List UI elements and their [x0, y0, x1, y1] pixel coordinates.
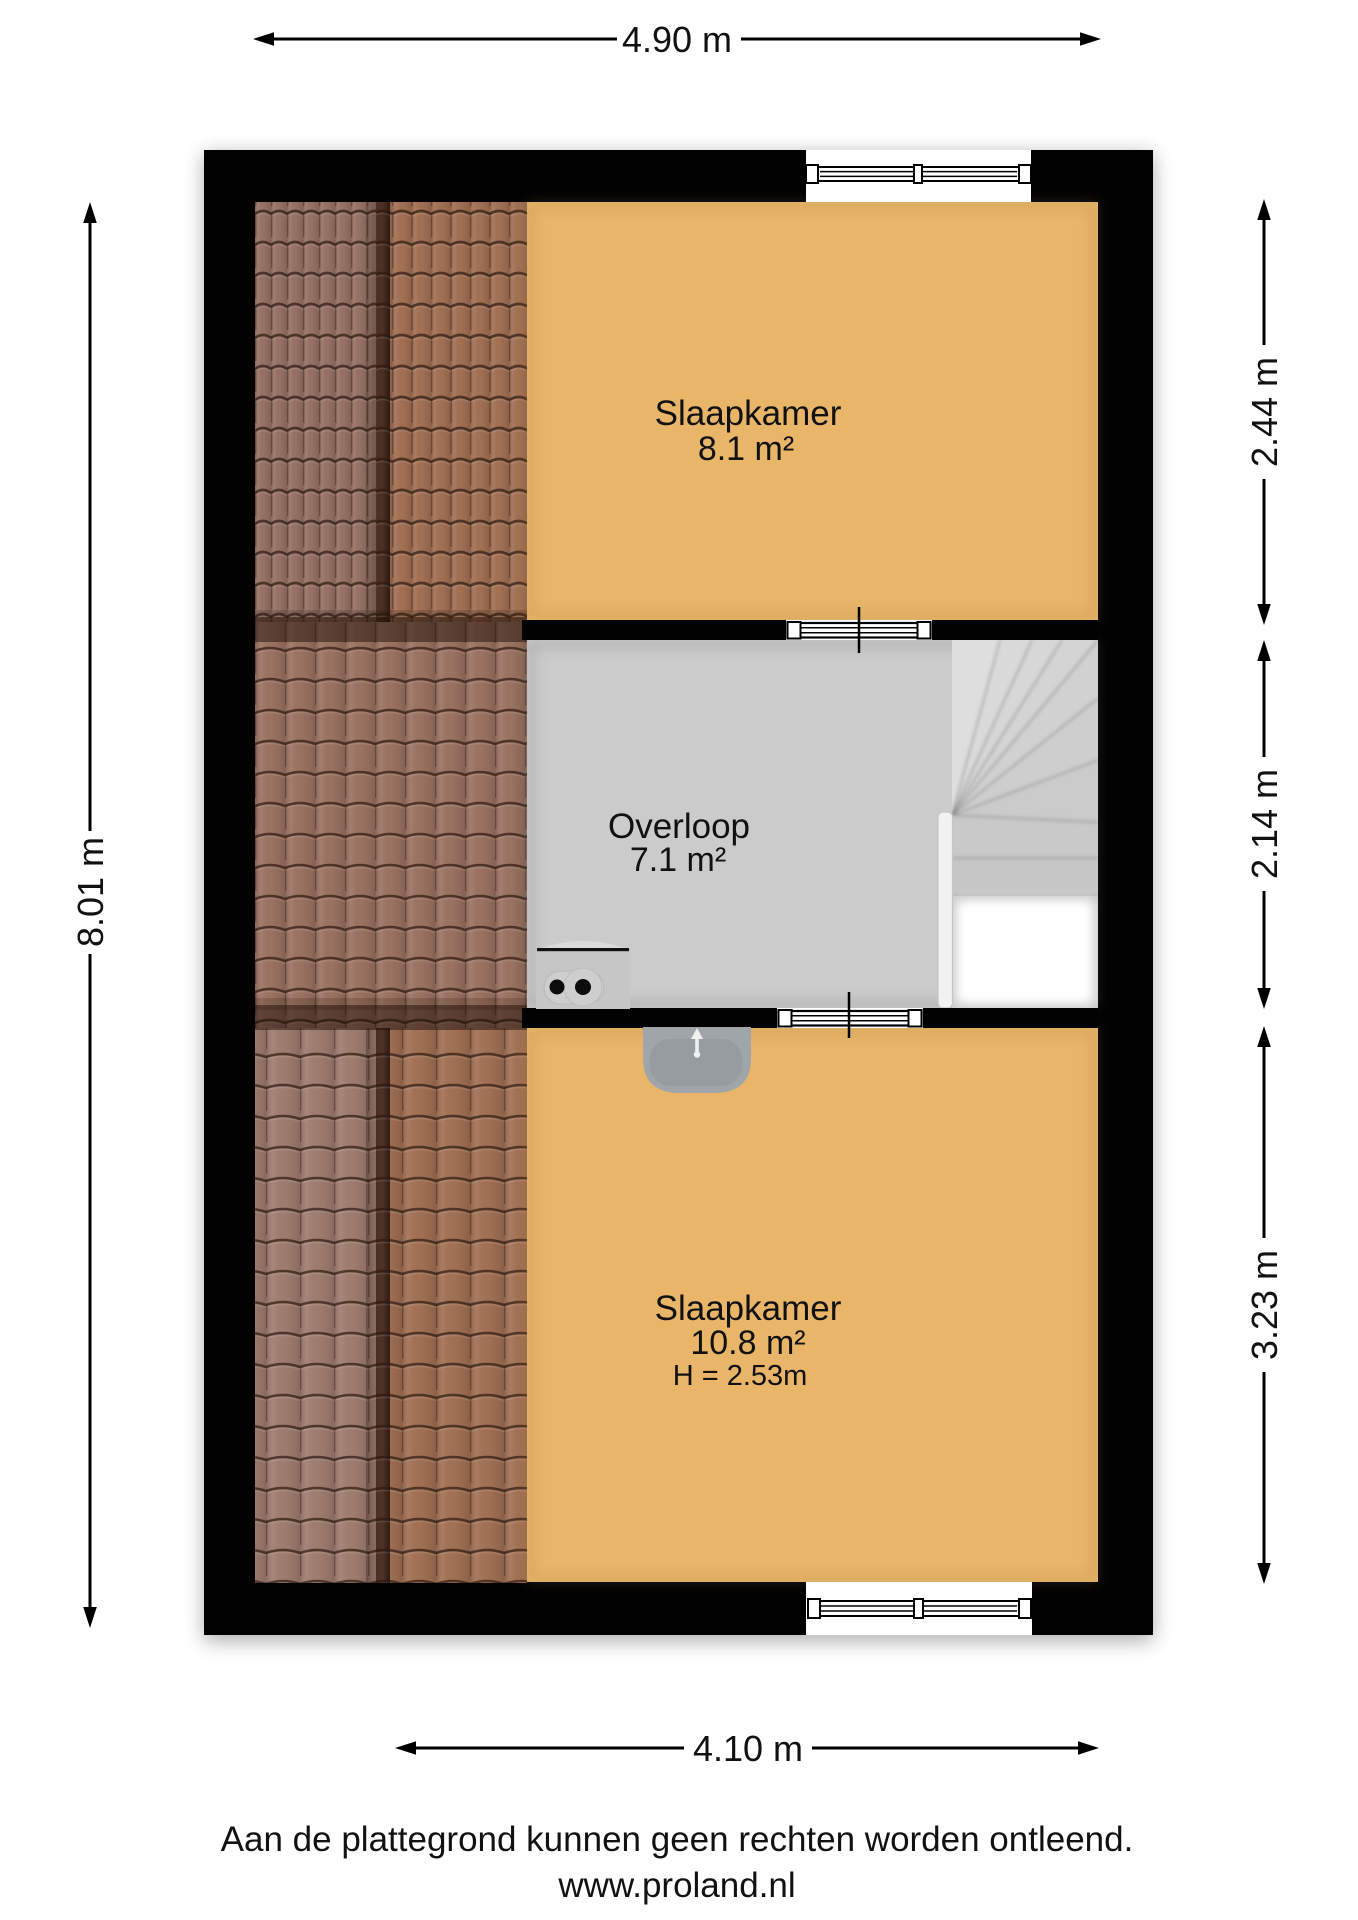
svg-text:Slaapkamer: Slaapkamer: [655, 1289, 842, 1328]
svg-text:3.23 m: 3.23 m: [1244, 1250, 1285, 1360]
svg-text:2.14 m: 2.14 m: [1244, 769, 1285, 879]
svg-text:8.1 m²: 8.1 m²: [698, 430, 794, 468]
svg-text:H = 2.53m: H = 2.53m: [673, 1360, 808, 1392]
svg-text:Aan de plattegrond kunnen geen: Aan de plattegrond kunnen geen rechten w…: [221, 1820, 1134, 1859]
svg-text:7.1 m²: 7.1 m²: [630, 841, 726, 879]
svg-text:www.proland.nl: www.proland.nl: [557, 1866, 795, 1905]
svg-text:2.44 m: 2.44 m: [1244, 357, 1285, 467]
svg-text:Slaapkamer: Slaapkamer: [655, 394, 842, 433]
svg-text:4.10 m: 4.10 m: [693, 1728, 803, 1769]
svg-text:10.8 m²: 10.8 m²: [690, 1324, 805, 1362]
svg-text:4.90 m: 4.90 m: [622, 19, 732, 60]
svg-text:8.01 m: 8.01 m: [70, 837, 111, 947]
